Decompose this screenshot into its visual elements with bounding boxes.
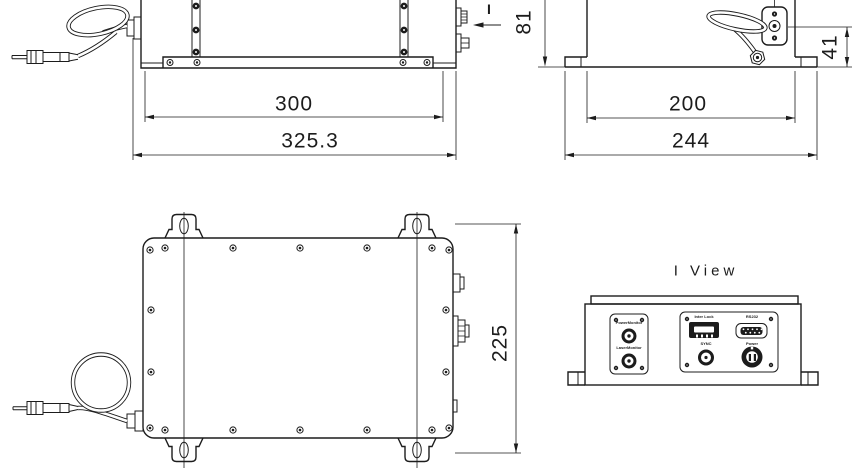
side-connector-profiles bbox=[456, 8, 469, 52]
rs232-label: RS232 bbox=[746, 315, 758, 319]
dim-label-200: 200 bbox=[669, 94, 707, 115]
power-connector bbox=[742, 347, 763, 368]
bracket-screws bbox=[193, 3, 408, 56]
fiber-connector-top bbox=[13, 402, 78, 415]
fiber-cable-front bbox=[707, 9, 767, 52]
io-plate bbox=[680, 312, 778, 372]
interlock-connector bbox=[689, 322, 719, 338]
fiber-cable-side bbox=[66, 2, 130, 56]
laser-monitor-label: LaserMonitor bbox=[616, 346, 641, 350]
laser-monitor-connector bbox=[623, 355, 635, 367]
flange-screws bbox=[167, 60, 430, 66]
fiber-connector-front bbox=[750, 50, 764, 64]
dim-label-225: 225 bbox=[490, 324, 511, 362]
side-view-linework bbox=[12, 0, 469, 160]
drawing-linework bbox=[0, 0, 861, 470]
top-view-linework bbox=[13, 212, 521, 468]
dim-label-81: 81 bbox=[514, 9, 535, 34]
technical-drawing-canvas: 300 325.3 81 41 200 244 225 I I View Pow… bbox=[0, 0, 861, 470]
fiber-plate-front bbox=[762, 0, 787, 45]
dim-label-41: 41 bbox=[820, 34, 841, 59]
interlock-label: Inter Lock bbox=[694, 315, 713, 319]
dim-label-325-3: 325.3 bbox=[281, 131, 339, 152]
dim-label-300: 300 bbox=[275, 94, 313, 115]
dim-81 bbox=[543, 0, 547, 67]
power-label: Power bbox=[746, 342, 758, 346]
fiber-connector-side bbox=[12, 51, 78, 64]
sync-connector bbox=[700, 351, 713, 364]
top-connector-profiles bbox=[453, 274, 469, 412]
power-monitor-label: PowerMonitor bbox=[616, 321, 643, 325]
dim-label-244: 244 bbox=[672, 131, 710, 152]
fiber-cable-top bbox=[73, 355, 129, 422]
i-view-title: I View bbox=[674, 264, 739, 279]
section-view-arrow bbox=[473, 22, 501, 27]
fiber-gland-top bbox=[127, 411, 143, 431]
sync-label: SYNC bbox=[700, 342, 711, 346]
i-view-linework bbox=[568, 296, 818, 385]
cover-screws bbox=[147, 245, 452, 433]
rs232-connector bbox=[736, 324, 767, 339]
power-monitor-connector bbox=[623, 330, 635, 342]
section-arrow-label: I bbox=[487, 2, 491, 16]
fiber-gland-side bbox=[127, 17, 141, 39]
